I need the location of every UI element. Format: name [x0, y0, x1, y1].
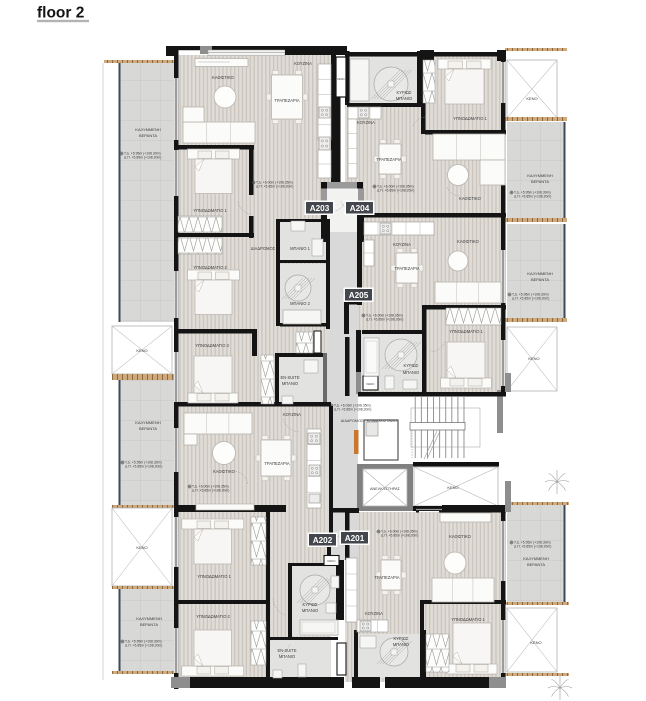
- svg-text:ΥΠΝΟΔΩΜΑΤΙΟ 1: ΥΠΝΟΔΩΜΑΤΙΟ 1: [197, 574, 231, 579]
- svg-text:ΒΕΡΑΝΤΑ: ΒΕΡΑΝΤΑ: [531, 179, 549, 184]
- svg-text:Δ.Π. +5.85m (+108.20m): Δ.Π. +5.85m (+108.20m): [125, 644, 162, 648]
- svg-text:ΚΑΘΙΣΤΙΚΟ: ΚΑΘΙΣΤΙΚΟ: [457, 239, 479, 244]
- svg-text:Δ.Π. +5.85m (+108.20m): Δ.Π. +5.85m (+108.20m): [192, 489, 229, 493]
- svg-text:ΚΑΘΙΣΤΙΚΟ: ΚΑΘΙΣΤΙΚΟ: [449, 534, 471, 539]
- svg-text:ΜΠΑΝΙΟ 1: ΜΠΑΝΙΟ 1: [290, 246, 311, 251]
- svg-text:A205: A205: [349, 291, 369, 300]
- svg-text:ΚΑΛΥΜΜΕΝΗ: ΚΑΛΥΜΜΕΝΗ: [135, 127, 161, 132]
- svg-text:ΚΥΡΙΩΣ: ΚΥΡΙΩΣ: [394, 636, 409, 641]
- svg-text:ΚΑΛΥΜΜΕΝΗ: ΚΑΛΥΜΜΕΝΗ: [135, 420, 161, 425]
- svg-text:A203: A203: [310, 204, 330, 213]
- svg-text:ΚΕΝΟ: ΚΕΝΟ: [136, 545, 147, 550]
- svg-text:ΚΕΝΟ: ΚΕΝΟ: [337, 77, 344, 81]
- svg-text:floor 2: floor 2: [37, 5, 84, 22]
- svg-text:ΥΠΝΟΔΩΜΑΤΙΟ 1: ΥΠΝΟΔΩΜΑΤΙΟ 1: [449, 329, 483, 334]
- svg-text:Δ.Π. +5.85m (+108.20m): Δ.Π. +5.85m (+108.20m): [256, 185, 293, 189]
- svg-text:ΒΕΡΑΝΤΑ: ΒΕΡΑΝΤΑ: [527, 562, 545, 567]
- svg-text:ΚΟΥΖΙΝΑ: ΚΟΥΖΙΝΑ: [357, 120, 375, 125]
- svg-text:ΤΡΑΠΕΖΑΡΙΑ: ΤΡΑΠΕΖΑΡΙΑ: [374, 575, 399, 580]
- svg-text:ΚΥΡΙΩΣ: ΚΥΡΙΩΣ: [397, 90, 412, 95]
- svg-text:ΔΙΑΔΡΟΜΟΣ - ΚΛΙΜΑΚΟΣΤΑΣΙΟ: ΔΙΑΔΡΟΜΟΣ - ΚΛΙΜΑΚΟΣΤΑΣΙΟ: [341, 419, 397, 423]
- svg-text:Δ.Π. +5.85m (+108.20m): Δ.Π. +5.85m (+108.20m): [377, 189, 414, 193]
- svg-text:ΚΑΛΥΜΜΕΝΗ: ΚΑΛΥΜΜΕΝΗ: [527, 173, 553, 178]
- svg-text:ΜΠΑΝΙΟ: ΜΠΑΝΙΟ: [279, 654, 295, 659]
- svg-text:A202: A202: [313, 536, 333, 545]
- svg-text:ΥΠΝΟΔΩΜΑΤΙΟ 2: ΥΠΝΟΔΩΜΑΤΙΟ 2: [193, 265, 227, 270]
- svg-text:ΚΑΛΥΜΜΕΝΗ: ΚΑΛΥΜΜΕΝΗ: [136, 616, 162, 621]
- svg-text:EN-SUITE: EN-SUITE: [280, 375, 299, 380]
- svg-text:ΥΠΝΟΔΩΜΑΤΙΟ 1: ΥΠΝΟΔΩΜΑΤΙΟ 1: [451, 617, 485, 622]
- svg-text:ΒΕΡΑΝΤΑ: ΒΕΡΑΝΤΑ: [531, 277, 549, 282]
- svg-text:ΚΕΝΟ: ΚΕΝΟ: [367, 382, 376, 386]
- svg-text:ΚΟΥΖΙΝΑ: ΚΟΥΖΙΝΑ: [283, 412, 301, 417]
- svg-text:Δ.Π. +5.85m (+108.20m): Δ.Π. +5.85m (+108.20m): [125, 465, 162, 469]
- svg-text:ΚΥΡΙΩΣ: ΚΥΡΙΩΣ: [303, 602, 318, 607]
- svg-text:Δ.Π. +5.85m (+108.20m): Δ.Π. +5.85m (+108.20m): [512, 297, 549, 301]
- svg-text:ΚΥΡΙΩΣ: ΚΥΡΙΩΣ: [404, 363, 419, 368]
- svg-text:ΑΝΕΛΚΥΣΤΗΡΑΣ: ΑΝΕΛΚΥΣΤΗΡΑΣ: [370, 487, 401, 491]
- svg-text:ΜΠΑΝΙΟ: ΜΠΑΝΙΟ: [302, 608, 318, 613]
- svg-text:ΚΟΥΖΙΝΑ: ΚΟΥΖΙΝΑ: [294, 61, 312, 66]
- svg-text:ΜΠΑΝΙΟ: ΜΠΑΝΙΟ: [393, 642, 409, 647]
- svg-text:ΚΑΛΥΜΜΕΝΗ: ΚΑΛΥΜΜΕΝΗ: [527, 271, 553, 276]
- svg-text:Δ.Π. +5.85m (+108.20m): Δ.Π. +5.85m (+108.20m): [124, 156, 161, 160]
- svg-text:ΤΡΑΠΕΖΑΡΙΑ: ΤΡΑΠΕΖΑΡΙΑ: [264, 461, 289, 466]
- svg-text:ΥΠΝΟΔΩΜΑΤΙΟ 2: ΥΠΝΟΔΩΜΑΤΙΟ 2: [196, 614, 230, 619]
- svg-text:ΚΕΝΟ: ΚΕΝΟ: [530, 640, 541, 645]
- svg-text:ΥΠΝΟΔΩΜΑΤΙΟ 1: ΥΠΝΟΔΩΜΑΤΙΟ 1: [193, 208, 227, 213]
- svg-text:A204: A204: [350, 204, 370, 213]
- svg-text:ΒΕΡΑΝΤΑ: ΒΕΡΑΝΤΑ: [139, 133, 157, 138]
- svg-text:ΤΡΑΠΕΖΑΡΙΑ: ΤΡΑΠΕΖΑΡΙΑ: [394, 266, 419, 271]
- svg-text:ΥΠΝΟΔΩΜΑΤΙΟ 1: ΥΠΝΟΔΩΜΑΤΙΟ 1: [453, 116, 487, 121]
- svg-text:ΚΕΝΟ: ΚΕΝΟ: [447, 485, 458, 490]
- svg-text:Δ.Π. +5.85m (+108.20m): Δ.Π. +5.85m (+108.20m): [334, 408, 371, 412]
- svg-text:ΚΕΝΟ: ΚΕΝΟ: [136, 348, 147, 353]
- svg-text:ΚΑΛΥΜΜΕΝΗ: ΚΑΛΥΜΜΕΝΗ: [523, 556, 549, 561]
- svg-text:ΜΠΑΝΙΟ: ΜΠΑΝΙΟ: [403, 370, 419, 375]
- svg-text:ΚΟΥΖΙΝΑ: ΚΟΥΖΙΝΑ: [393, 242, 411, 247]
- svg-text:EN-SUITE: EN-SUITE: [277, 648, 296, 653]
- svg-text:ΚΑΘΙΣΤΙΚΟ: ΚΑΘΙΣΤΙΚΟ: [213, 469, 235, 474]
- svg-text:ΚΑΘΙΣΤΙΚΟ: ΚΑΘΙΣΤΙΚΟ: [212, 75, 234, 80]
- svg-text:A201: A201: [345, 534, 365, 543]
- svg-text:ΜΠΑΝΙΟ: ΜΠΑΝΙΟ: [396, 96, 412, 101]
- svg-text:ΥΠΝΟΔΩΜΑΤΙΟ 3: ΥΠΝΟΔΩΜΑΤΙΟ 3: [195, 343, 229, 348]
- svg-text:ΜΠΑΝΙΟ 2: ΜΠΑΝΙΟ 2: [290, 301, 311, 306]
- svg-text:ΚΕΝΟ: ΚΕΝΟ: [526, 96, 537, 101]
- svg-text:ΤΡΑΠΕΖΑΡΙΑ: ΤΡΑΠΕΖΑΡΙΑ: [376, 157, 401, 162]
- svg-text:ΜΠΑΝΙΟ: ΜΠΑΝΙΟ: [282, 381, 298, 386]
- svg-text:ΚΟΥΖΙΝΑ: ΚΟΥΖΙΝΑ: [365, 611, 383, 616]
- svg-text:Δ.Π. +5.85m (+108.20m): Δ.Π. +5.85m (+108.20m): [514, 545, 551, 549]
- svg-text:ΒΕΡΑΝΤΑ: ΒΕΡΑΝΤΑ: [139, 426, 157, 431]
- svg-text:ΚΑΘΙΣΤΙΚΟ: ΚΑΘΙΣΤΙΚΟ: [459, 196, 481, 201]
- svg-text:Δ.Π. +5.85m (+108.20m): Δ.Π. +5.85m (+108.20m): [366, 318, 403, 322]
- svg-text:ΔΙΑΔΡΟΜΟΣ: ΔΙΑΔΡΟΜΟΣ: [251, 246, 276, 251]
- svg-text:ΚΕΝΟ: ΚΕΝΟ: [328, 559, 337, 563]
- svg-text:ΒΕΡΑΝΤΑ: ΒΕΡΑΝΤΑ: [140, 622, 158, 627]
- svg-text:ΤΡΑΠΕΖΑΡΙΑ: ΤΡΑΠΕΖΑΡΙΑ: [274, 98, 299, 103]
- svg-text:ΚΕΝΟ: ΚΕΝΟ: [528, 356, 539, 361]
- svg-text:Δ.Π. +5.85m (+108.20m): Δ.Π. +5.85m (+108.20m): [381, 534, 418, 538]
- svg-text:Δ.Π. +5.85m (+108.20m): Δ.Π. +5.85m (+108.20m): [514, 195, 551, 199]
